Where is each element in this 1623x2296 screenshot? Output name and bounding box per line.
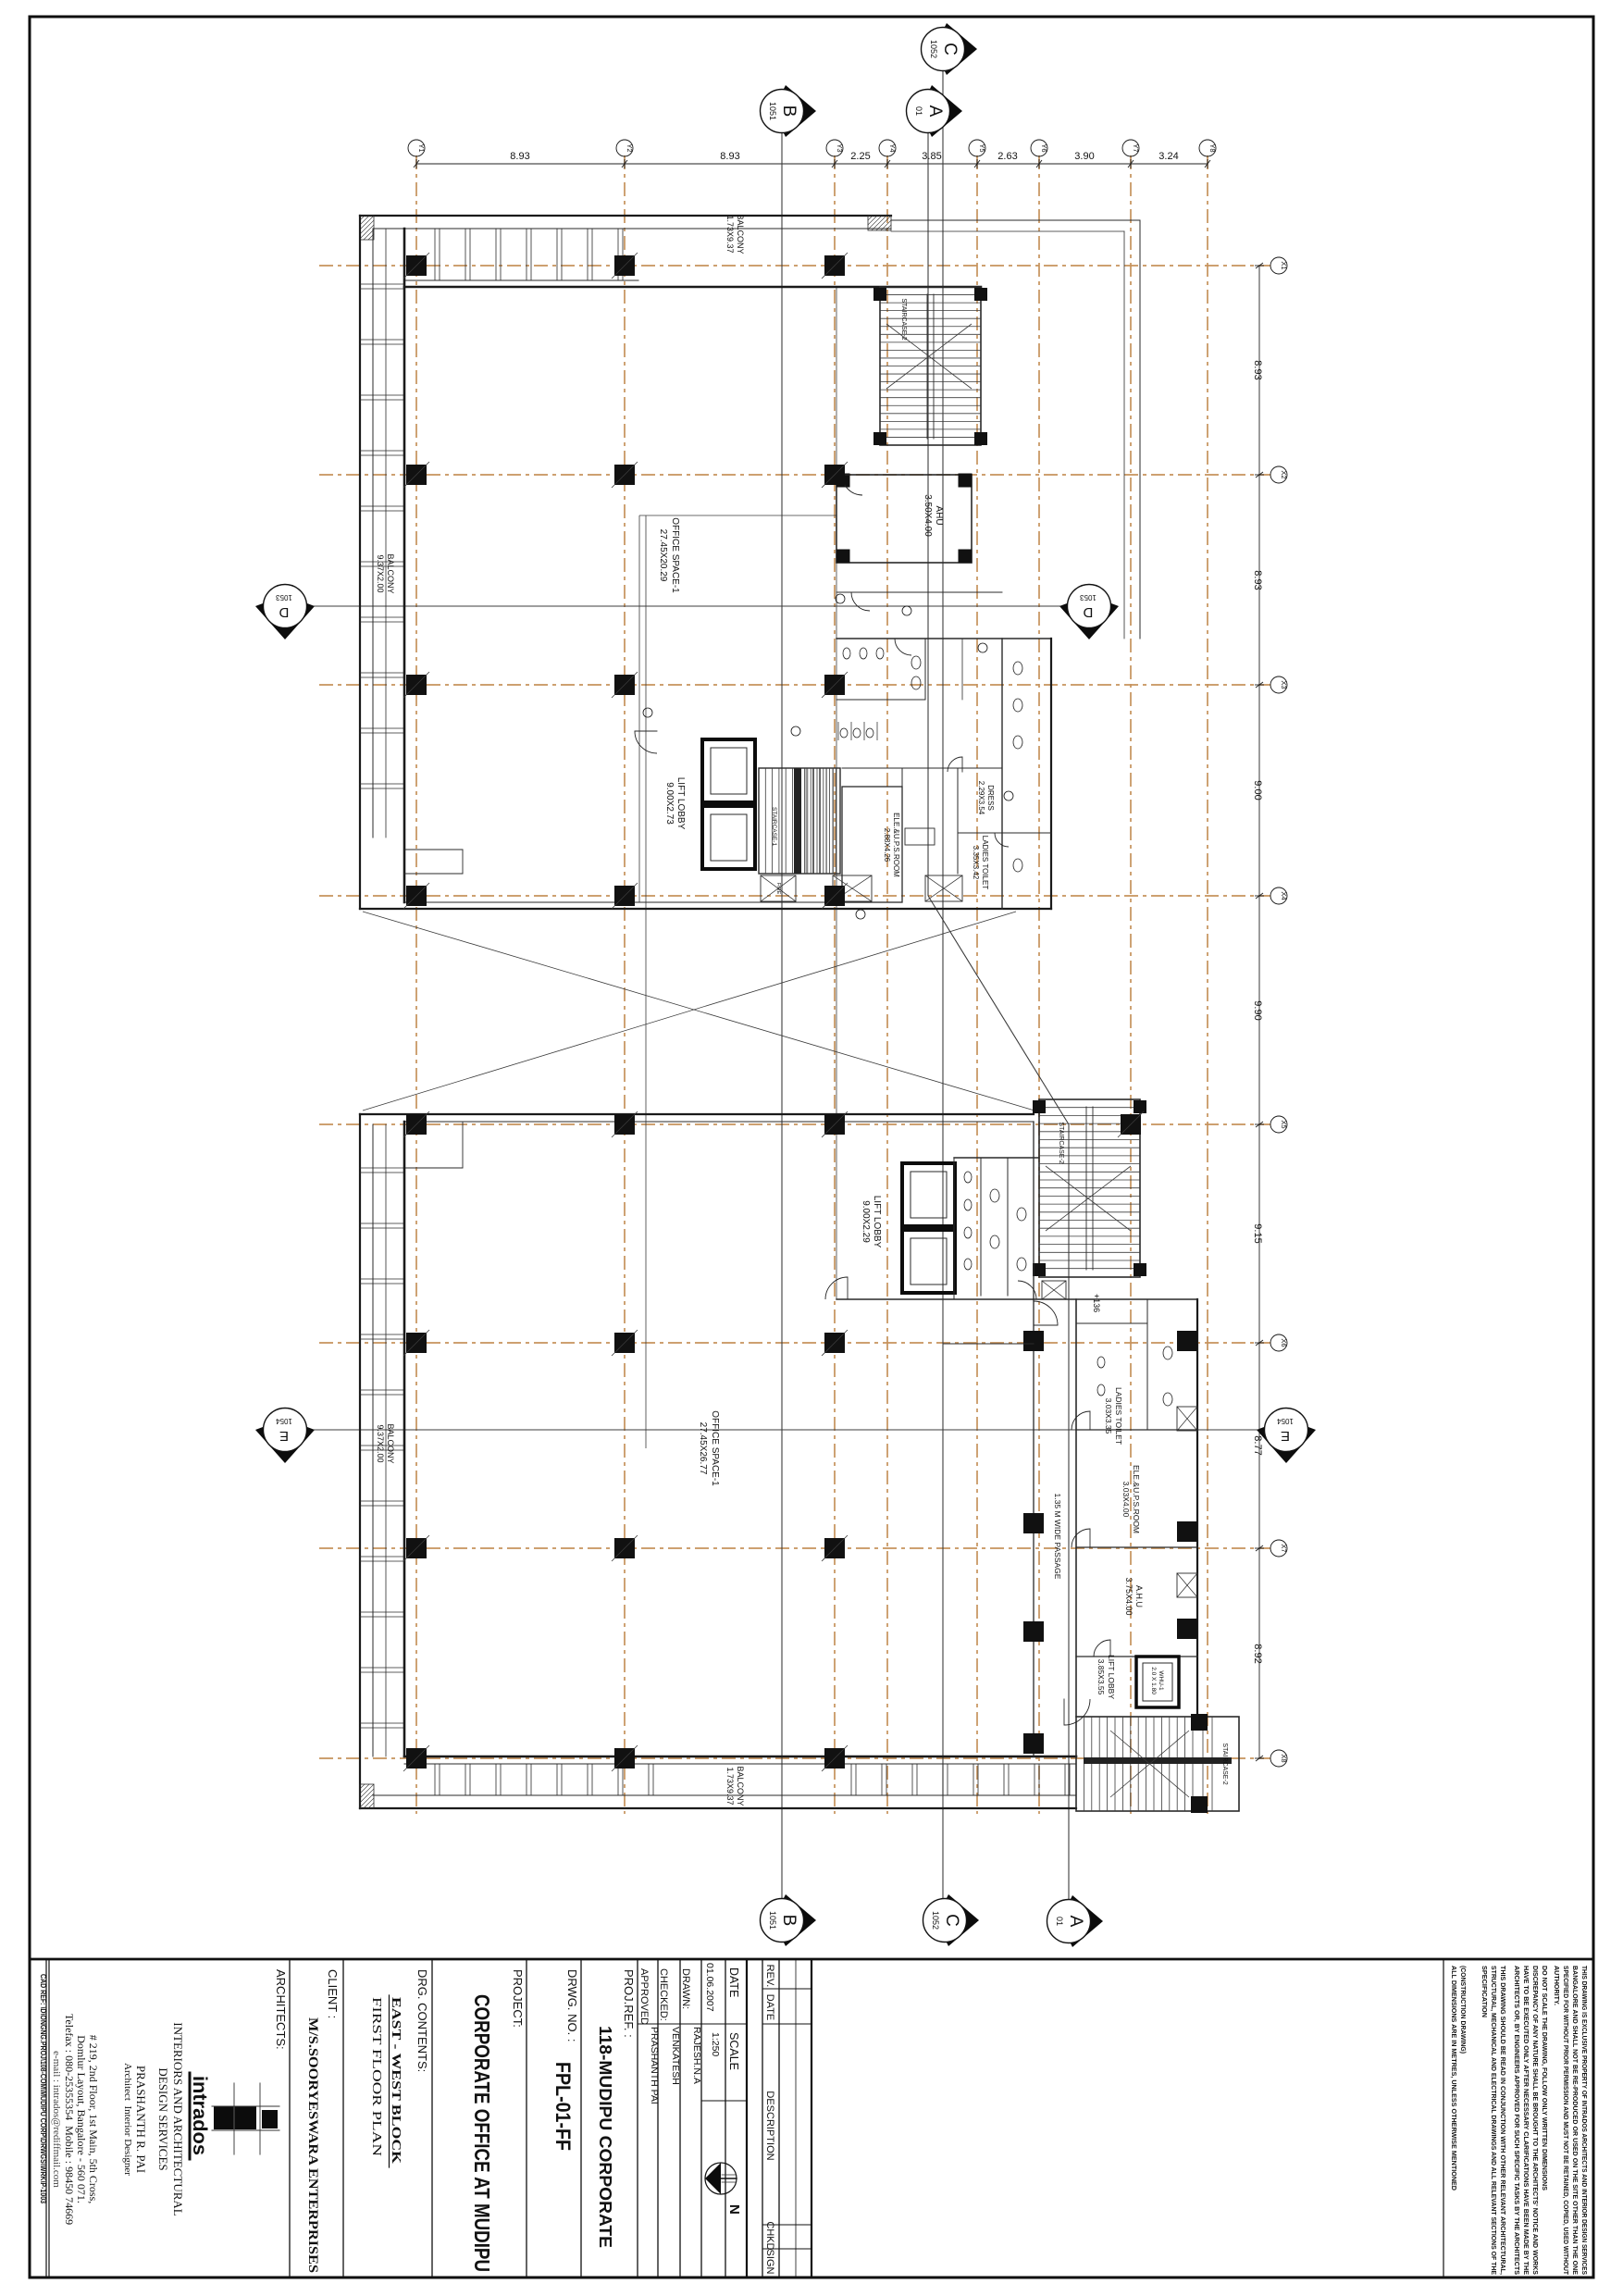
svg-text:THIS DRAWING SHOULD BE READ IN: THIS DRAWING SHOULD BE READ IN CONJUNCTI… xyxy=(1499,1966,1507,2275)
svg-text:X7: X7 xyxy=(1280,1544,1288,1552)
svg-text:ALL DIMENSIONS ARE IN METRES,: ALL DIMENSIONS ARE IN METRES, UNLESS OTH… xyxy=(1450,1966,1458,2191)
svg-text:1054: 1054 xyxy=(1277,1417,1294,1425)
svg-text:CAD REF: \D\ONGNG.PROJ\108-COM: CAD REF: \D\ONGNG.PROJ\108-COM\MUDIPU CO… xyxy=(39,1974,47,2203)
svg-text:OFFICE SPACE-1: OFFICE SPACE-1 xyxy=(710,1410,720,1486)
svg-text:LADIES TOILET: LADIES TOILET xyxy=(981,836,989,890)
svg-text:DRWG. NO. :: DRWG. NO. : xyxy=(565,1969,579,2042)
svg-text:STAIRCASE-2: STAIRCASE-2 xyxy=(900,298,907,340)
svg-text:8.93: 8.93 xyxy=(1252,570,1263,590)
svg-text:ELE.&U.P.S.ROOM: ELE.&U.P.S.ROOM xyxy=(1132,1465,1141,1533)
svg-text:THIS DRAWING IS EXCLUSIVE PROP: THIS DRAWING IS EXCLUSIVE PROPERTY OF IN… xyxy=(1580,1966,1589,2275)
svg-text:CHECKED:: CHECKED: xyxy=(658,1968,669,2021)
svg-text:ELE.&U.P.S.ROOM: ELE.&U.P.S.ROOM xyxy=(892,813,900,877)
svg-text:X5: X5 xyxy=(1280,1120,1288,1128)
svg-text:27.45X20.29: 27.45X20.29 xyxy=(658,529,668,582)
svg-text:STAIRCASE-2: STAIRCASE-2 xyxy=(1221,1743,1228,1784)
svg-text:E: E xyxy=(1281,1428,1290,1444)
svg-text:Y5: Y5 xyxy=(978,143,986,152)
svg-text:OFFICE SPACE-1: OFFICE SPACE-1 xyxy=(670,517,680,593)
svg-text:CLIENT :: CLIENT : xyxy=(326,1969,340,2018)
svg-text:Y4: Y4 xyxy=(888,143,897,152)
svg-text:DRAWN:: DRAWN: xyxy=(680,1968,691,2009)
svg-text:REV.: REV. xyxy=(764,1965,775,1988)
svg-text:1.35 M WIDE PASSAGE: 1.35 M WIDE PASSAGE xyxy=(1053,1494,1062,1580)
svg-text:M/S.SOORYESWARA ENTERPRISES: M/S.SOORYESWARA ENTERPRISES xyxy=(305,2017,320,2273)
svg-text:118-MUDIPU CORPORATE: 118-MUDIPU CORPORATE xyxy=(596,2026,614,2248)
svg-text:27.45X26.77: 27.45X26.77 xyxy=(698,1422,708,1475)
svg-text:SIGN: SIGN xyxy=(764,2250,775,2275)
svg-text:FIRST FLOOR PLAN: FIRST FLOOR PLAN xyxy=(369,1997,383,2156)
svg-text:Architect Interior Designer: Architect Interior Designer xyxy=(122,2063,133,2176)
svg-text:3.75X4.00: 3.75X4.00 xyxy=(1124,1577,1134,1615)
svg-text:3.50X4.00: 3.50X4.00 xyxy=(923,494,933,537)
svg-text:9.00X2.73: 9.00X2.73 xyxy=(664,782,675,825)
svg-text:3.90: 3.90 xyxy=(1074,151,1094,162)
svg-text:9.15: 9.15 xyxy=(1252,1223,1263,1243)
svg-text:01: 01 xyxy=(1055,1917,1064,1926)
svg-text:Y2: Y2 xyxy=(626,143,634,152)
svg-text:SPECIFIED FOR WITHOUT PRIOR PE: SPECIFIED FOR WITHOUT PRIOR PERMISSION A… xyxy=(1562,1966,1570,2275)
svg-text:3.03X4.00: 3.03X4.00 xyxy=(1121,1482,1131,1518)
svg-text:1053: 1053 xyxy=(276,593,292,602)
svg-text:X1: X1 xyxy=(1280,261,1288,269)
svg-text:HAVE TO BE EXECUTED ONLY AFTER: HAVE TO BE EXECUTED ONLY AFTER NECESSARY… xyxy=(1522,1966,1530,2275)
svg-text:8.93: 8.93 xyxy=(1252,360,1263,379)
svg-text:X2: X2 xyxy=(1280,470,1288,478)
svg-text:SPECIFICATION: SPECIFICATION xyxy=(1481,1966,1489,2017)
svg-text:D: D xyxy=(279,604,289,620)
svg-text:B: B xyxy=(779,105,799,118)
svg-text:A: A xyxy=(1066,1916,1085,1928)
svg-text:1.73X9.37: 1.73X9.37 xyxy=(725,1767,735,1805)
svg-text:DRESS: DRESS xyxy=(986,785,995,811)
svg-text:9.00X2.29: 9.00X2.29 xyxy=(861,1200,871,1243)
svg-text:FIRE: FIRE xyxy=(775,883,781,895)
svg-text:DATE: DATE xyxy=(764,1994,775,2021)
svg-text:Telefax : 080-25355354 Mobile: Telefax : 080-25355354 Mobile : 98450 74… xyxy=(63,2014,76,2225)
svg-text:9.37X2.00: 9.37X2.00 xyxy=(376,1424,385,1462)
svg-text:LADIES TOILET: LADIES TOILET xyxy=(1114,1387,1123,1445)
svg-text:Domlur Layout, Bangalore - 560: Domlur Layout, Bangalore - 560 071. xyxy=(75,2035,88,2203)
svg-text:intrados: intrados xyxy=(189,2076,210,2155)
svg-text:Y7: Y7 xyxy=(1132,143,1140,152)
svg-text:LIFT LOBBY: LIFT LOBBY xyxy=(1107,1655,1116,1699)
svg-text:BANGALORE AND SHALL NOT BE RE-: BANGALORE AND SHALL NOT BE RE-PRODUCED O… xyxy=(1571,1966,1580,2275)
svg-text:1053: 1053 xyxy=(1080,593,1096,602)
svg-text:LIFT LOBBY: LIFT LOBBY xyxy=(872,1196,882,1248)
svg-text:ARCHITECTS OR, BY ENGINEERS AP: ARCHITECTS OR, BY ENGINEERS APPROVED FOR… xyxy=(1513,1966,1521,2275)
svg-text:8.93: 8.93 xyxy=(510,151,529,162)
svg-text:(CONSTRUCTION DRAWING): (CONSTRUCTION DRAWING) xyxy=(1459,1966,1468,2054)
svg-text:2.63: 2.63 xyxy=(997,151,1017,162)
svg-text:E: E xyxy=(279,1428,289,1444)
svg-text:9.90: 9.90 xyxy=(1252,1000,1263,1020)
svg-text:1054: 1054 xyxy=(276,1417,292,1425)
svg-text:3.35X3.42: 3.35X3.42 xyxy=(972,846,980,880)
svg-text:2.29X3.54: 2.29X3.54 xyxy=(977,781,985,815)
svg-text:SCALE: SCALE xyxy=(727,2032,740,2070)
svg-text:+136: +136 xyxy=(1092,1294,1101,1312)
svg-text:Y3: Y3 xyxy=(836,143,844,152)
svg-text:AUTHORITY.: AUTHORITY. xyxy=(1553,1966,1561,2005)
svg-text:e-mail : intrados@rediffmail.c: e-mail : intrados@rediffmail.com xyxy=(51,2051,62,2188)
svg-text:PROJECT:: PROJECT: xyxy=(511,1969,525,2028)
svg-text:STRUCTURAL, MECHANICAL AND ELE: STRUCTURAL, MECHANICAL AND ELECTRICAL DR… xyxy=(1490,1966,1498,2275)
svg-text:C: C xyxy=(942,1914,961,1927)
svg-text:2.88X4.26: 2.88X4.26 xyxy=(883,828,891,863)
svg-text:LIFT LOBBY: LIFT LOBBY xyxy=(675,777,686,830)
svg-text:STAIRCASE-2: STAIRCASE-2 xyxy=(1058,1122,1064,1163)
svg-text:1:250: 1:250 xyxy=(710,2032,721,2056)
svg-text:AHU: AHU xyxy=(934,505,944,525)
svg-text:N: N xyxy=(726,2204,742,2215)
svg-text:RAJESH.N.A: RAJESH.N.A xyxy=(691,2027,702,2084)
svg-text:2.25: 2.25 xyxy=(850,151,870,162)
svg-text:2.0 X 1.80: 2.0 X 1.80 xyxy=(1150,1667,1157,1694)
svg-text:X3: X3 xyxy=(1280,680,1288,689)
svg-text:3.85: 3.85 xyxy=(922,151,941,162)
svg-text:1051: 1051 xyxy=(768,1911,777,1930)
svg-text:VENKATESH: VENKATESH xyxy=(670,2027,681,2085)
svg-text:Y8: Y8 xyxy=(1208,143,1217,152)
svg-text:B: B xyxy=(779,1915,799,1927)
svg-text:BALCONY: BALCONY xyxy=(386,553,395,593)
svg-text:BALCONY: BALCONY xyxy=(736,1766,745,1806)
svg-text:D: D xyxy=(1083,604,1093,620)
svg-text:X8: X8 xyxy=(1280,1754,1288,1762)
svg-text:X6: X6 xyxy=(1280,1338,1288,1347)
svg-text:DESCRIPTION: DESCRIPTION xyxy=(764,2091,775,2160)
svg-text:STAIRCASE-1: STAIRCASE-1 xyxy=(771,807,777,847)
svg-text:8.93: 8.93 xyxy=(720,151,739,162)
svg-text:X4: X4 xyxy=(1280,891,1288,900)
svg-text:EAST - WEST BLOCK: EAST - WEST BLOCK xyxy=(389,1997,403,2164)
svg-text:Y6: Y6 xyxy=(1040,143,1048,152)
svg-text:A.H.U: A.H.U xyxy=(1134,1585,1144,1607)
svg-text:DO NOT SCALE THE DRAWING, FOLL: DO NOT SCALE THE DRAWING, FOLLOW ONLY WR… xyxy=(1541,1966,1549,2191)
svg-text:PROJ.REF. :: PROJ.REF. : xyxy=(622,1969,636,2038)
svg-text:01: 01 xyxy=(914,106,923,116)
svg-text:A: A xyxy=(925,105,945,118)
svg-text:9.00: 9.00 xyxy=(1252,780,1263,800)
svg-text:ARCHITECTS:: ARCHITECTS: xyxy=(274,1969,288,2050)
svg-text:PRASHANTH PAI: PRASHANTH PAI xyxy=(649,2027,660,2104)
svg-text:3.24: 3.24 xyxy=(1158,151,1178,162)
svg-text:INTERIORS AND ARCHITECTURAL: INTERIORS AND ARCHITECTURAL xyxy=(171,2022,185,2216)
svg-text:3.85X3.55: 3.85X3.55 xyxy=(1096,1659,1106,1695)
svg-text:1052: 1052 xyxy=(931,1911,940,1930)
svg-text:1052: 1052 xyxy=(929,40,938,58)
svg-text:DISCREPANCY OF ANY NATURE SHAL: DISCREPANCY OF ANY NATURE SHALL BE BROUG… xyxy=(1531,1966,1540,2275)
svg-text:BALCONY: BALCONY xyxy=(736,214,745,254)
svg-text:8.77: 8.77 xyxy=(1252,1435,1263,1455)
svg-text:9.37X2.00: 9.37X2.00 xyxy=(376,554,385,592)
svg-text:# 219, 2nd Floor, 1st Main, 5t: # 219, 2nd Floor, 1st Main, 5th Cross, xyxy=(87,2035,100,2204)
svg-text:APPROVED: APPROVED xyxy=(638,1968,650,2025)
svg-text:1051: 1051 xyxy=(768,102,777,120)
svg-text:3.03X3.35: 3.03X3.35 xyxy=(1104,1398,1113,1434)
svg-text:Y1: Y1 xyxy=(417,143,426,152)
svg-text:WHU-1: WHU-1 xyxy=(1158,1670,1164,1691)
svg-text:CORPORATE OFFICE AT MUDIPU: CORPORATE OFFICE AT MUDIPU xyxy=(470,1994,494,2272)
svg-text:8.92: 8.92 xyxy=(1252,1644,1263,1663)
svg-text:DESIGN SERVICES: DESIGN SERVICES xyxy=(156,2067,170,2170)
svg-text:C: C xyxy=(940,43,960,56)
svg-text:BALCONY: BALCONY xyxy=(386,1423,395,1463)
svg-text:PRASHANTH R. PAI: PRASHANTH R. PAI xyxy=(134,2066,148,2173)
svg-text:FPL-01-FF: FPL-01-FF xyxy=(551,2062,575,2151)
svg-text:CHKD: CHKD xyxy=(764,2221,775,2250)
svg-text:DRG. CONTENTS:: DRG. CONTENTS: xyxy=(415,1969,429,2072)
svg-text:01.06.2007: 01.06.2007 xyxy=(704,1963,715,2012)
svg-text:DATE: DATE xyxy=(727,1967,740,1997)
svg-text:1.73X9.37: 1.73X9.37 xyxy=(725,215,735,253)
